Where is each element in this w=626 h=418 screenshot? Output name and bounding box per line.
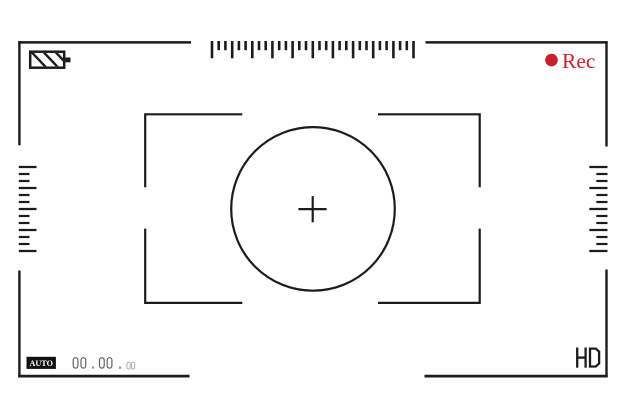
svg-text:Rec: Rec — [562, 49, 595, 73]
svg-text:AUTO: AUTO — [29, 359, 53, 368]
